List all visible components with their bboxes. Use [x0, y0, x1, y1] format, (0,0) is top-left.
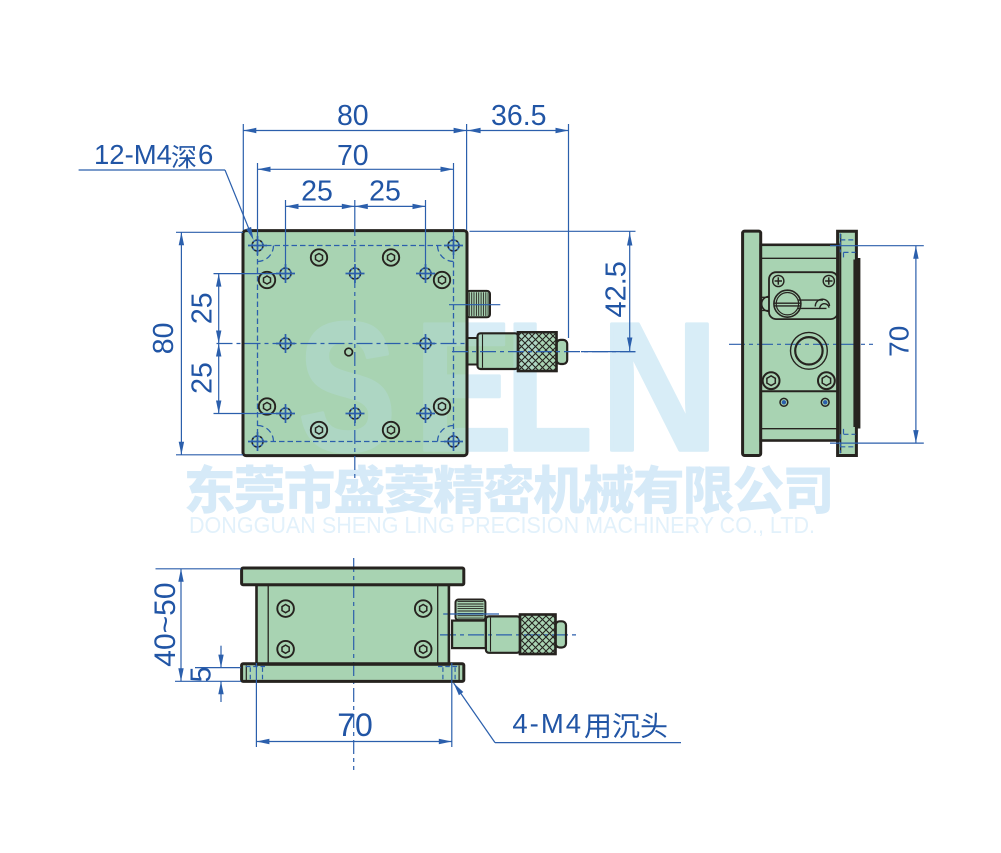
svg-text:80: 80 — [148, 323, 180, 355]
svg-text:25: 25 — [186, 362, 218, 394]
svg-text:25: 25 — [186, 292, 218, 324]
svg-text:12-M4: 12-M4 — [94, 139, 172, 170]
svg-text:4-M4: 4-M4 — [512, 708, 583, 739]
svg-text:80: 80 — [337, 100, 369, 132]
svg-text:L: L — [505, 284, 592, 489]
svg-text:70: 70 — [337, 707, 373, 743]
svg-text:5: 5 — [186, 666, 218, 682]
svg-text:70: 70 — [884, 326, 915, 357]
svg-text:36.5: 36.5 — [491, 100, 546, 132]
svg-text:25: 25 — [369, 176, 401, 208]
svg-text:E: E — [415, 285, 513, 489]
svg-text:25: 25 — [301, 176, 333, 208]
svg-text:DONGGUAN SHENG LING PRECISION: DONGGUAN SHENG LING PRECISION MACHINERY … — [189, 512, 815, 538]
svg-text:42.5: 42.5 — [601, 261, 633, 317]
svg-text:70: 70 — [337, 140, 369, 172]
svg-text:40~50: 40~50 — [149, 582, 182, 666]
svg-text:S: S — [298, 285, 396, 489]
svg-text:6: 6 — [198, 139, 213, 170]
